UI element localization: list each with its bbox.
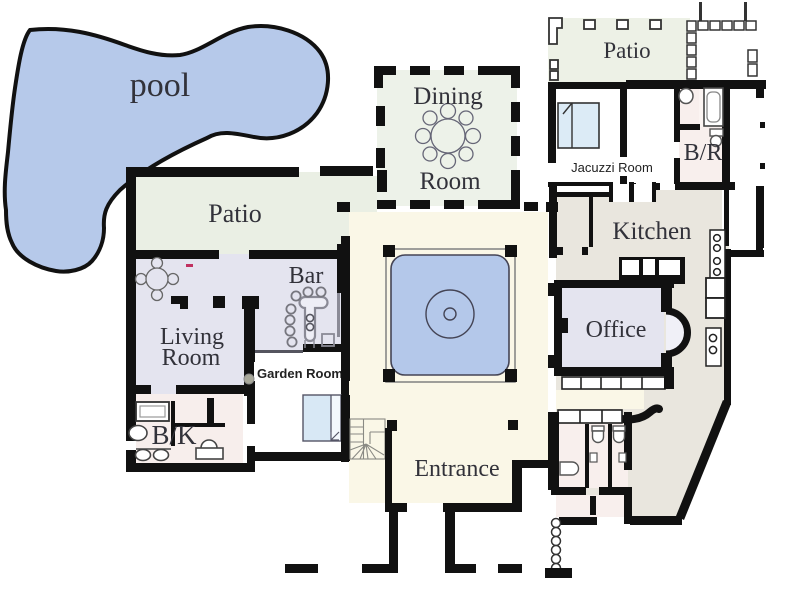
svg-text:Office: Office xyxy=(586,317,647,343)
svg-text:pool: pool xyxy=(130,67,190,104)
svg-text:Room: Room xyxy=(419,168,481,195)
svg-text:Patio: Patio xyxy=(603,38,650,63)
svg-text:Kitchen: Kitchen xyxy=(612,218,692,245)
svg-text:Dining: Dining xyxy=(413,83,483,110)
svg-text:B/K: B/K xyxy=(151,420,197,450)
svg-text:Patio: Patio xyxy=(208,199,261,228)
svg-text:Jacuzzi Room: Jacuzzi Room xyxy=(571,160,653,175)
svg-text:B/R: B/R xyxy=(684,140,723,166)
svg-text:Room: Room xyxy=(162,345,221,371)
svg-text:Entrance: Entrance xyxy=(414,456,499,482)
svg-text:Garden Room: Garden Room xyxy=(257,366,343,381)
svg-text:Bar: Bar xyxy=(289,263,324,289)
